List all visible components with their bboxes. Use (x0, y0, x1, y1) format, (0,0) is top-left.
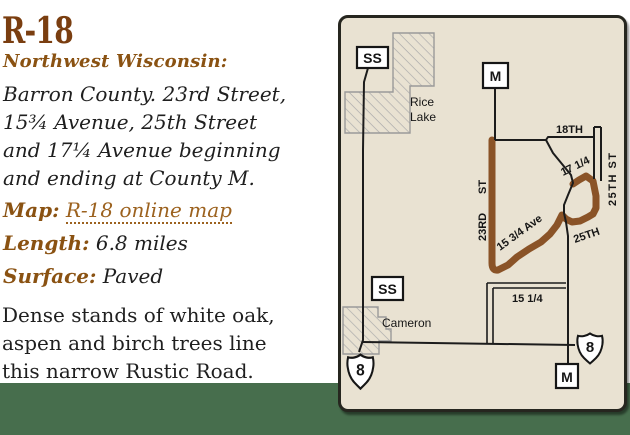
online-map-link[interactable]: R-18 online map (66, 198, 232, 224)
length-label: Length: (3, 231, 89, 255)
route-notes-line: this narrow Rustic Road. (2, 357, 275, 385)
length-row: Length: 6.8 miles (3, 231, 188, 255)
county-ss-marker-bottom: SS (372, 277, 403, 300)
svg-text:SS: SS (363, 50, 382, 66)
county-m-marker-top: M (483, 63, 508, 88)
twentyfifth-st-road (594, 127, 601, 181)
eighteenth-label: 18TH (556, 124, 583, 136)
eighteenth-road (546, 137, 594, 140)
svg-text:M: M (561, 369, 573, 385)
county-ss-marker-top: SS (357, 47, 388, 68)
map-label: Map: (3, 198, 59, 222)
rice-lake-label: Lake (410, 110, 436, 124)
twentythird-st-label: ST (477, 180, 489, 194)
region-heading: Northwest Wisconsin: (3, 51, 228, 72)
us-8-road (362, 342, 575, 345)
svg-text:8: 8 (356, 361, 365, 380)
route-description-line: and ending at County M. (3, 164, 286, 192)
route-description-line: and 17¼ Avenue beginning (3, 136, 286, 164)
svg-text:SS: SS (378, 281, 397, 297)
route-description-line: Barron County. 23rd Street, (3, 80, 286, 108)
twentyfifth-st-label: 25TH ST (607, 151, 619, 206)
county-m-marker-bottom: M (556, 364, 578, 388)
page-title: R-18 (2, 10, 73, 52)
us-8-shield-left: 8 (347, 355, 373, 389)
route-description-line: 15¾ Avenue, 25th Street (3, 108, 286, 136)
route-notes: Dense stands of white oak, aspen and bir… (2, 301, 275, 385)
length-value: 6.8 miles (96, 231, 188, 255)
twentyfifth-label: 25TH (572, 226, 601, 246)
cameron-label: Cameron (382, 316, 431, 330)
svg-text:M: M (490, 68, 502, 84)
cameron-urban-area (343, 307, 391, 354)
route-description: Barron County. 23rd Street, 15¾ Avenue, … (3, 80, 286, 192)
svg-text:8: 8 (586, 339, 594, 356)
fifteen-one-quarter-label: 15 1/4 (512, 293, 543, 305)
twentythird-label: 23RD (477, 213, 489, 241)
fifteen-one-quarter-road (487, 283, 566, 343)
surface-row: Surface: Paved (3, 264, 163, 288)
surface-label: Surface: (3, 264, 96, 288)
route-notes-line: Dense stands of white oak, (2, 301, 275, 329)
route-map: Rice Lake Cameron 18TH 25TH ST 23RD ST 1… (338, 15, 627, 412)
map-row: Map: R-18 online map (3, 198, 232, 222)
route-map-canvas: Rice Lake Cameron 18TH 25TH ST 23RD ST 1… (341, 18, 624, 409)
route-notes-line: aspen and birch trees line (2, 329, 275, 357)
rice-lake-label: Rice (410, 95, 434, 109)
surface-value: Paved (103, 264, 163, 288)
us-8-shield-right: 8 (577, 334, 602, 364)
article-text-column: R-18 Northwest Wisconsin: Barron County.… (0, 0, 336, 383)
